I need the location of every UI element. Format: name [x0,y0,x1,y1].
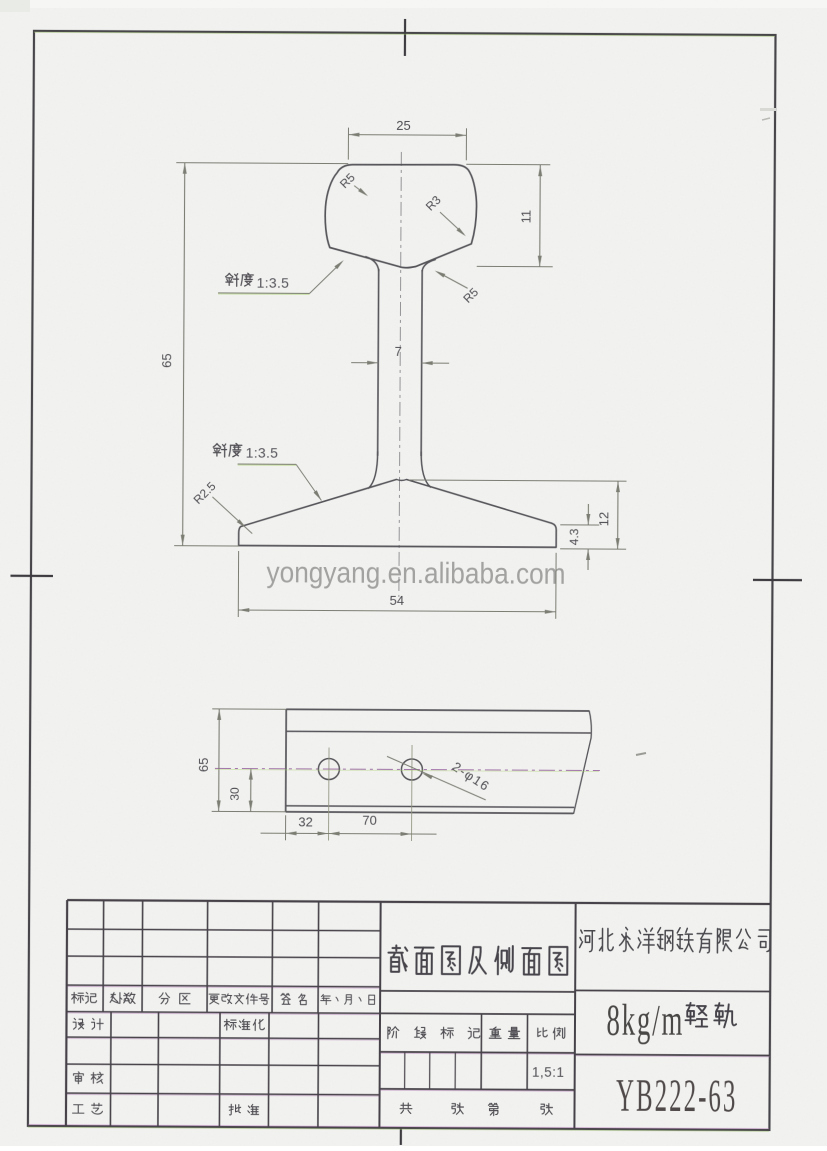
svg-text:1:3.5: 1:3.5 [257,275,290,291]
svg-text:1,5:1: 1,5:1 [532,1065,565,1080]
svg-text:8kg/m: 8kg/m [606,996,684,1045]
svg-text:yongyang.en.alibaba.com: yongyang.en.alibaba.com [266,555,565,591]
svg-text:54: 54 [390,593,405,608]
svg-text:11: 11 [518,210,533,224]
svg-text:65: 65 [196,758,211,773]
svg-text:25: 25 [396,118,411,133]
svg-text:65: 65 [159,353,174,368]
svg-text:4.3: 4.3 [567,528,581,545]
svg-text:YB222-63: YB222-63 [616,1071,738,1123]
svg-text:12: 12 [596,512,611,527]
svg-text:1:3.5: 1:3.5 [246,445,279,461]
svg-text:30: 30 [228,787,242,801]
svg-text:7: 7 [395,344,402,359]
svg-text:32: 32 [298,814,313,829]
svg-text:70: 70 [362,813,377,828]
